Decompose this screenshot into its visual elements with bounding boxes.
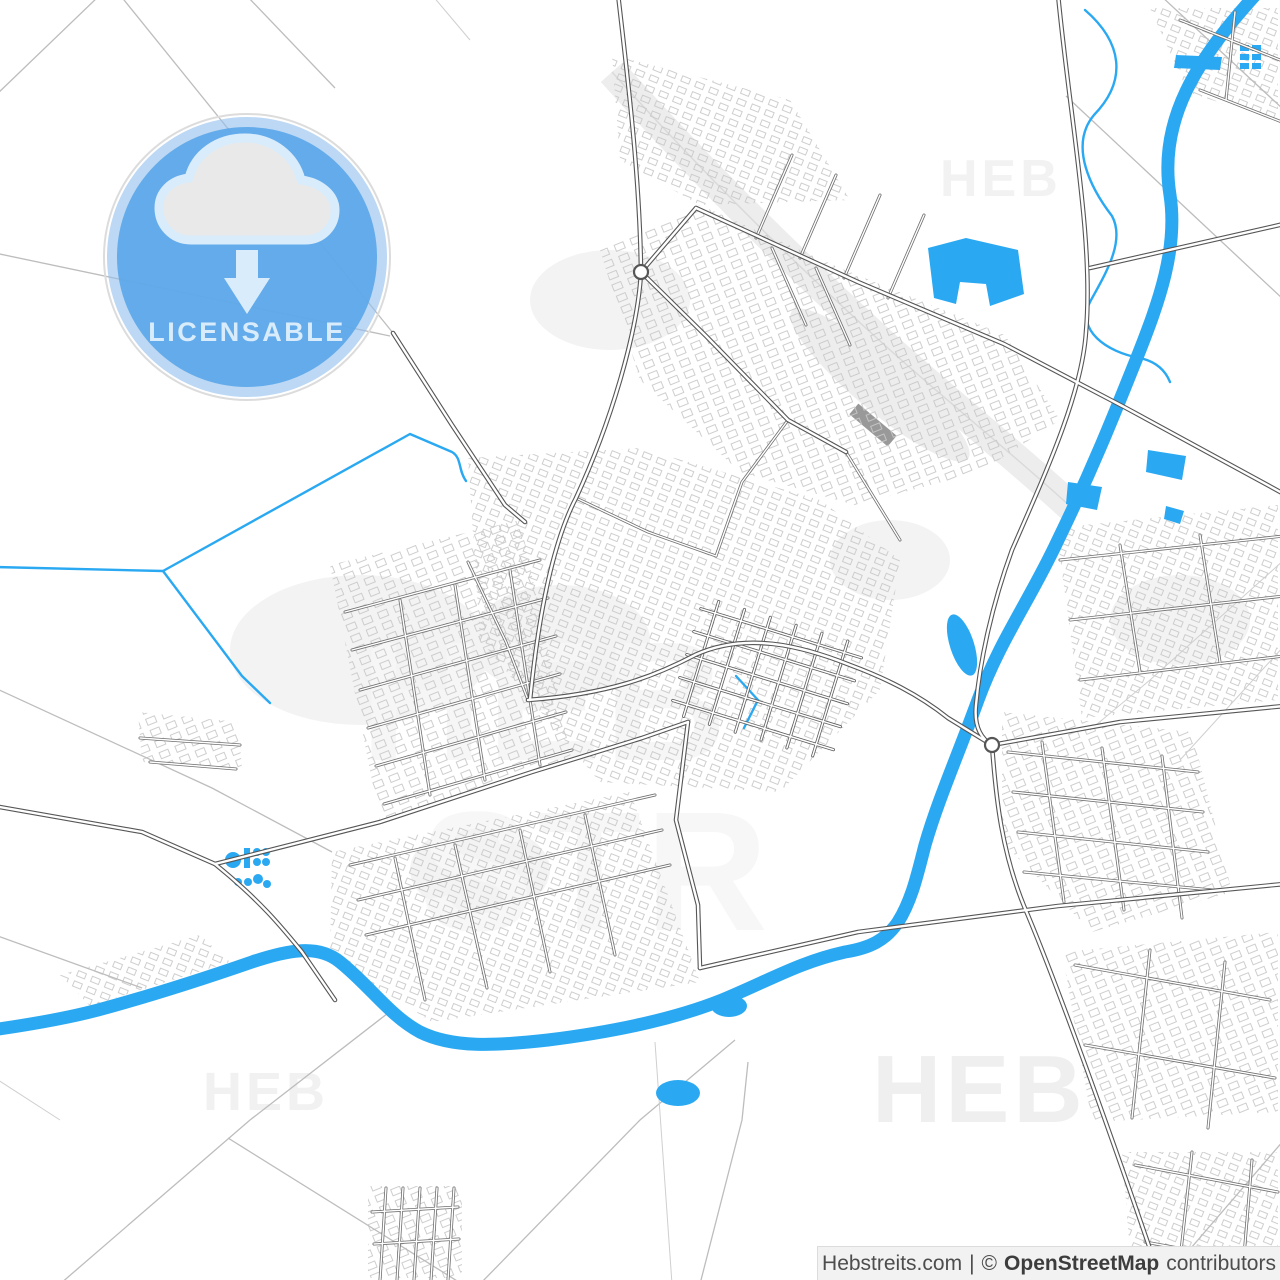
badge-label: LICENSABLE	[148, 317, 346, 347]
roundabout	[985, 738, 999, 752]
watermark-text: HEB	[203, 1062, 329, 1122]
attribution-separator: |	[969, 1252, 974, 1276]
city-map-canvas: HEB HEB STR HEB HEB	[0, 0, 1280, 1280]
licensable-badge: LICENSABLE	[104, 114, 390, 400]
watermark-text: HEB	[940, 150, 1062, 208]
attribution-site: Hebstreits.com	[822, 1252, 962, 1276]
watermark-text: HEB	[872, 1036, 1087, 1143]
roundabout	[634, 265, 648, 279]
attribution-contributors: contributors	[1166, 1252, 1276, 1276]
map-stage: HEB HEB STR HEB HEB	[0, 0, 1280, 1280]
attribution-bar: Hebstreits.com | © OpenStreetMap contrib…	[817, 1246, 1280, 1280]
attribution-source: OpenStreetMap	[1004, 1252, 1159, 1276]
copyright-symbol: ©	[982, 1252, 997, 1276]
